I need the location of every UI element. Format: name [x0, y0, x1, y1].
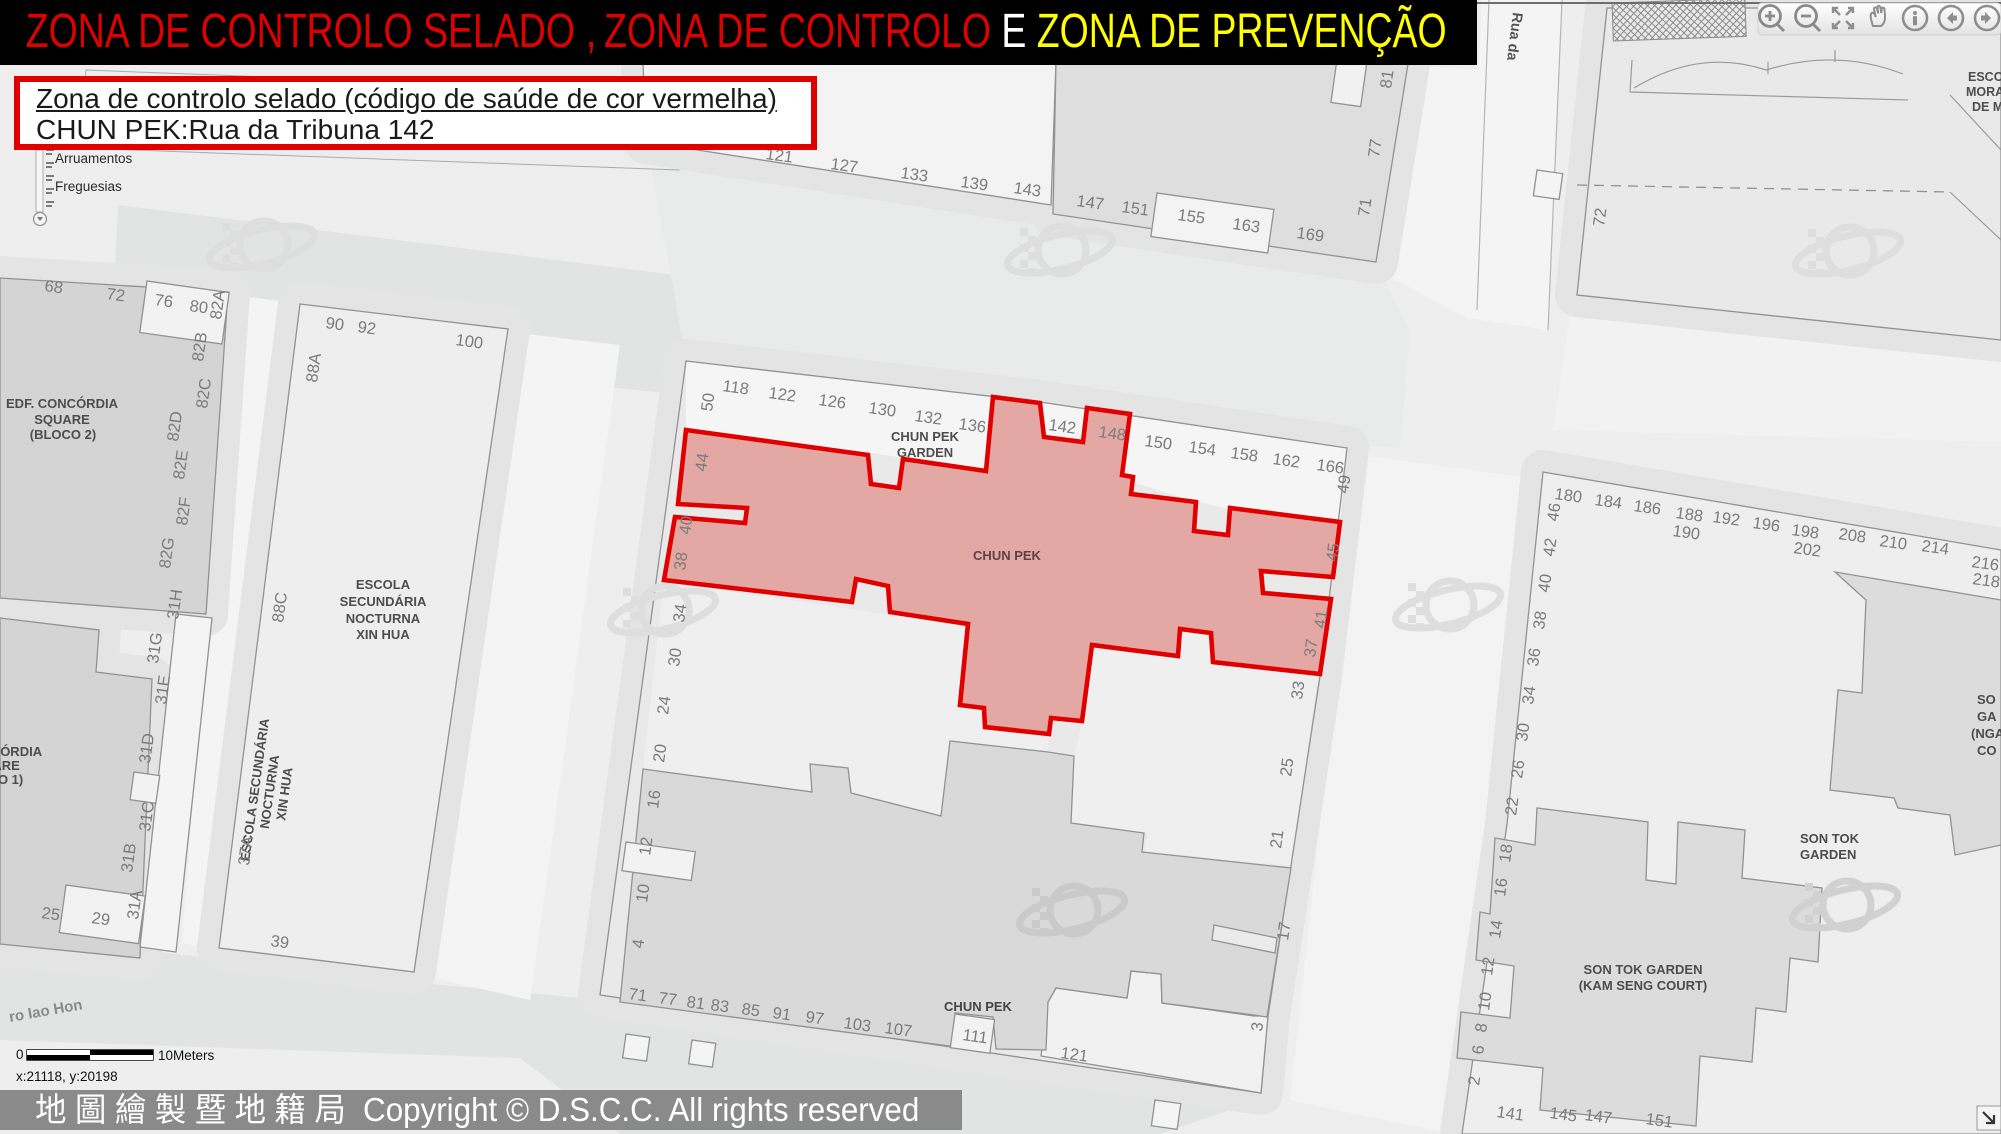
- svg-text:214: 214: [1920, 537, 1950, 559]
- svg-text:72: 72: [1590, 207, 1610, 228]
- svg-text:107: 107: [883, 1019, 913, 1041]
- svg-text:162: 162: [1271, 450, 1301, 472]
- svg-text:Freguesias: Freguesias: [55, 179, 122, 194]
- svg-text:90: 90: [324, 314, 345, 334]
- svg-text:147: 147: [1075, 192, 1105, 214]
- svg-text:18: 18: [1496, 843, 1516, 864]
- svg-text:40: 40: [676, 515, 696, 536]
- svg-text:133: 133: [899, 164, 929, 186]
- svg-text:25: 25: [1277, 757, 1297, 778]
- svg-text:CONCÓRDIA: CONCÓRDIA: [0, 744, 43, 759]
- svg-text:30: 30: [665, 647, 685, 668]
- svg-text:158: 158: [1229, 444, 1259, 466]
- svg-text:10Meters: 10Meters: [158, 1048, 215, 1063]
- svg-text:45: 45: [1323, 542, 1343, 563]
- svg-text:122: 122: [767, 384, 797, 406]
- svg-text:(BLOCO 2): (BLOCO 2): [30, 427, 96, 442]
- svg-text:71: 71: [627, 985, 648, 1005]
- svg-text:36: 36: [1524, 647, 1544, 668]
- svg-text:x:21118, y:20198: x:21118, y:20198: [16, 1069, 118, 1084]
- svg-text:148: 148: [1097, 423, 1127, 445]
- svg-text:Arruamentos: Arruamentos: [55, 151, 133, 166]
- svg-text:EDF. CONCÓRDIA: EDF. CONCÓRDIA: [6, 396, 119, 411]
- svg-text:121: 121: [1059, 1044, 1089, 1066]
- svg-text:202: 202: [1792, 539, 1822, 561]
- svg-text:25: 25: [40, 904, 61, 924]
- svg-text:42: 42: [1540, 537, 1560, 558]
- svg-text:192: 192: [1711, 508, 1741, 530]
- svg-text:154: 154: [1187, 438, 1217, 460]
- svg-text:26: 26: [1508, 759, 1528, 780]
- svg-text:SQUARE: SQUARE: [34, 412, 90, 427]
- svg-text:118: 118: [721, 377, 750, 398]
- svg-text:49: 49: [1334, 474, 1354, 495]
- svg-text:33: 33: [1288, 680, 1308, 701]
- svg-text:81: 81: [1377, 69, 1397, 90]
- svg-text:24: 24: [654, 695, 674, 716]
- svg-text:38: 38: [671, 551, 691, 572]
- svg-text:208: 208: [1837, 525, 1867, 547]
- svg-text:71: 71: [1355, 197, 1375, 218]
- svg-text:76: 76: [153, 291, 174, 311]
- svg-text:SQUARE: SQUARE: [0, 758, 20, 773]
- svg-text:126: 126: [817, 391, 847, 413]
- svg-text:190: 190: [1671, 522, 1701, 544]
- svg-text:91: 91: [771, 1004, 792, 1024]
- svg-text:210: 210: [1878, 532, 1908, 554]
- svg-text:0: 0: [16, 1047, 24, 1062]
- svg-text:22: 22: [1502, 796, 1522, 817]
- svg-text:81: 81: [685, 993, 706, 1013]
- svg-text:83: 83: [709, 996, 730, 1016]
- svg-text:151: 151: [1644, 1110, 1674, 1132]
- svg-text:186: 186: [1632, 497, 1662, 519]
- svg-text:136: 136: [957, 415, 987, 437]
- svg-text:(KAM SENG COURT): (KAM SENG COURT): [1579, 978, 1708, 993]
- svg-text:ESCOLA: ESCOLA: [356, 577, 411, 592]
- svg-text:38: 38: [1530, 610, 1550, 631]
- svg-text:20: 20: [650, 743, 670, 764]
- svg-text:127: 127: [829, 155, 859, 177]
- svg-text:85: 85: [740, 1000, 761, 1020]
- svg-text:DE M: DE M: [1972, 100, 2001, 114]
- svg-text:103: 103: [842, 1014, 872, 1036]
- svg-text:141: 141: [1495, 1103, 1525, 1125]
- svg-text:SECUNDÁRIA: SECUNDÁRIA: [340, 594, 427, 609]
- svg-text:130: 130: [867, 399, 897, 421]
- svg-text:155: 155: [1176, 206, 1206, 228]
- svg-text:29: 29: [90, 909, 111, 929]
- svg-text:CHUN PEK: CHUN PEK: [973, 548, 1042, 563]
- svg-text:SON TOK GARDEN: SON TOK GARDEN: [1584, 962, 1703, 977]
- svg-text:SO: SO: [1977, 692, 1996, 707]
- svg-text:68: 68: [43, 277, 64, 297]
- svg-text:37: 37: [1301, 638, 1321, 659]
- svg-text:150: 150: [1143, 432, 1173, 454]
- svg-text:16: 16: [644, 789, 664, 810]
- svg-text:77: 77: [1365, 138, 1385, 159]
- svg-text:92: 92: [356, 318, 377, 338]
- svg-text:CHUN PEK: CHUN PEK: [944, 999, 1013, 1014]
- svg-text:169: 169: [1295, 224, 1325, 246]
- svg-text:196: 196: [1751, 514, 1781, 536]
- svg-text:143: 143: [1012, 179, 1042, 201]
- svg-text:XIN HUA: XIN HUA: [356, 627, 410, 642]
- svg-text:218: 218: [1971, 570, 2001, 592]
- svg-text:12: 12: [636, 836, 656, 857]
- svg-text:100: 100: [454, 331, 484, 353]
- svg-text:MORA: MORA: [1966, 85, 2001, 99]
- svg-text:46: 46: [1544, 502, 1564, 523]
- svg-text:151: 151: [1120, 198, 1150, 220]
- svg-text:139: 139: [959, 173, 989, 195]
- svg-text:CHUN PEK: CHUN PEK: [891, 429, 960, 444]
- svg-text:GA: GA: [1977, 709, 1997, 724]
- svg-text:12: 12: [1478, 956, 1498, 977]
- svg-text:132: 132: [913, 407, 943, 429]
- svg-text:GARDEN: GARDEN: [897, 445, 953, 460]
- svg-text:77: 77: [657, 989, 678, 1009]
- svg-text:ESCO: ESCO: [1968, 70, 2001, 84]
- svg-text:17: 17: [1274, 921, 1294, 942]
- svg-text:NOCTURNA: NOCTURNA: [346, 611, 421, 626]
- svg-text:39: 39: [269, 932, 290, 952]
- svg-text:CO: CO: [1977, 743, 1997, 758]
- svg-text:SON TOK: SON TOK: [1800, 831, 1860, 846]
- svg-text:16: 16: [1491, 877, 1511, 898]
- svg-text:21: 21: [1267, 829, 1287, 850]
- svg-text:145: 145: [1548, 1104, 1578, 1126]
- svg-text:10: 10: [633, 883, 653, 904]
- svg-text:34: 34: [670, 603, 690, 624]
- svg-text:(NGA: (NGA: [1971, 726, 2001, 741]
- svg-text:72: 72: [105, 285, 126, 305]
- svg-text:97: 97: [804, 1008, 825, 1028]
- svg-text:147: 147: [1583, 1106, 1613, 1128]
- svg-text:40: 40: [1535, 573, 1555, 594]
- svg-text:41: 41: [1311, 609, 1331, 630]
- svg-text:14: 14: [1486, 919, 1506, 940]
- svg-text:163: 163: [1231, 215, 1261, 237]
- svg-text:80: 80: [188, 297, 209, 317]
- svg-text:(BLOCO 1): (BLOCO 1): [0, 772, 23, 787]
- svg-text:44: 44: [692, 452, 712, 473]
- svg-text:10: 10: [1475, 991, 1495, 1012]
- svg-text:34: 34: [1519, 685, 1539, 706]
- svg-text:184: 184: [1593, 491, 1623, 513]
- svg-text:50: 50: [698, 392, 718, 413]
- svg-text:111: 111: [961, 1026, 988, 1047]
- svg-text:30: 30: [1513, 722, 1533, 743]
- svg-text:142: 142: [1047, 416, 1077, 438]
- svg-text:GARDEN: GARDEN: [1800, 847, 1856, 862]
